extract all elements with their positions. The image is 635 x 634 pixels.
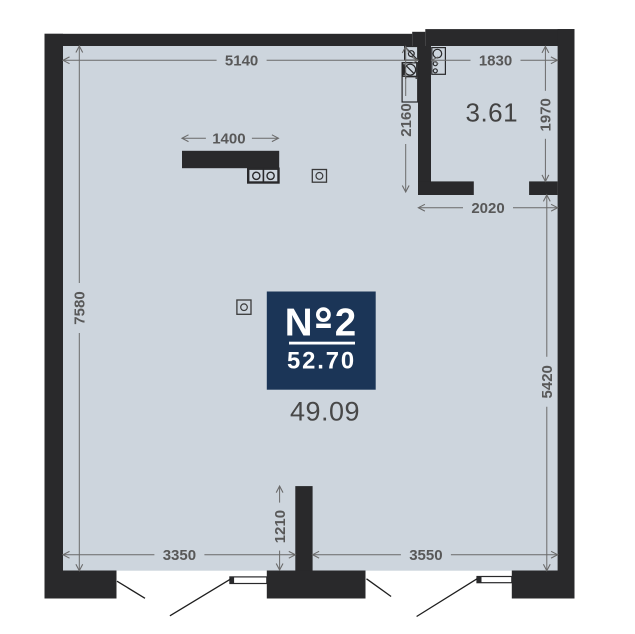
svg-text:52.70: 52.70 xyxy=(287,347,356,374)
svg-text:5140: 5140 xyxy=(225,53,258,70)
svg-text:1210: 1210 xyxy=(272,510,289,543)
svg-text:7580: 7580 xyxy=(72,291,89,324)
svg-text:2160: 2160 xyxy=(398,103,415,136)
svg-text:1970: 1970 xyxy=(538,98,555,131)
svg-text:2: 2 xyxy=(335,301,356,344)
svg-text:5420: 5420 xyxy=(539,365,556,398)
svg-text:1400: 1400 xyxy=(212,131,245,148)
svg-text:2020: 2020 xyxy=(471,200,504,217)
svg-text:N: N xyxy=(285,301,313,344)
svg-text:3550: 3550 xyxy=(409,547,442,564)
svg-text:1830: 1830 xyxy=(479,53,512,70)
svg-text:3350: 3350 xyxy=(163,547,196,564)
svg-text:3.61: 3.61 xyxy=(465,98,518,128)
svg-text:49.09: 49.09 xyxy=(290,396,360,426)
